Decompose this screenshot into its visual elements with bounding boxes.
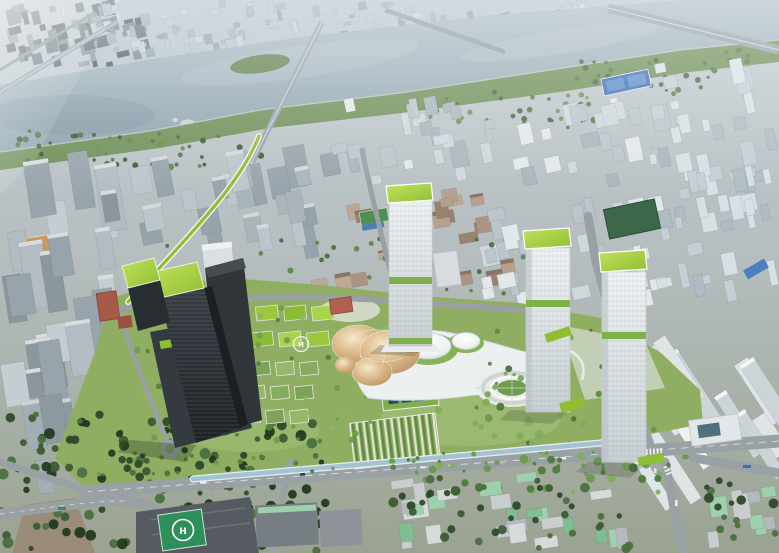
- tree: [190, 454, 194, 458]
- tree: [102, 473, 105, 476]
- tree: [330, 424, 336, 430]
- tree: [475, 237, 479, 241]
- tree: [577, 452, 585, 460]
- tree: [729, 500, 734, 505]
- tree: [537, 485, 543, 491]
- tree: [293, 461, 298, 466]
- tree: [259, 454, 264, 459]
- tree: [315, 241, 319, 245]
- tree: [255, 436, 261, 442]
- tree: [495, 460, 500, 465]
- tree: [438, 460, 441, 463]
- tree: [61, 512, 70, 521]
- tree: [457, 510, 464, 517]
- tree: [296, 437, 300, 441]
- building: [490, 493, 512, 510]
- tree: [409, 508, 417, 516]
- tree: [474, 405, 478, 409]
- tree: [310, 469, 314, 473]
- tree: [336, 418, 339, 421]
- tree: [290, 356, 294, 360]
- tree: [504, 372, 508, 376]
- tree: [304, 397, 308, 401]
- tree: [471, 452, 476, 457]
- tree: [391, 464, 396, 469]
- tree: [557, 457, 562, 462]
- tree: [77, 467, 88, 478]
- tree: [444, 490, 450, 496]
- tree: [484, 465, 491, 472]
- tree: [535, 430, 544, 439]
- brick-building: [117, 315, 133, 329]
- tree: [198, 491, 203, 496]
- tree: [342, 410, 346, 414]
- tree: [279, 238, 283, 242]
- tree: [130, 470, 136, 476]
- building: [482, 287, 495, 300]
- tree: [569, 503, 575, 509]
- tree: [49, 519, 59, 529]
- tree: [251, 456, 256, 461]
- tree: [71, 435, 80, 444]
- building: [595, 529, 608, 543]
- tree: [638, 475, 646, 483]
- tree: [97, 472, 101, 476]
- tree: [264, 433, 271, 440]
- tree: [238, 459, 243, 464]
- tree: [532, 517, 538, 523]
- east-tower-b-grid: [602, 272, 646, 462]
- tree: [617, 513, 622, 518]
- tree: [319, 257, 324, 262]
- tree: [496, 403, 504, 411]
- tree: [416, 456, 420, 460]
- tree: [435, 407, 442, 414]
- tree: [563, 497, 570, 504]
- tree: [44, 428, 55, 439]
- tree: [244, 490, 249, 495]
- tree: [65, 464, 73, 472]
- tree: [134, 347, 141, 354]
- tree: [481, 484, 487, 490]
- tree: [547, 533, 552, 538]
- tree: [545, 451, 548, 454]
- garden-cell: [306, 331, 329, 347]
- tree: [195, 461, 204, 470]
- tree: [477, 269, 482, 274]
- tree: [99, 506, 106, 513]
- tree: [666, 463, 671, 468]
- tree: [256, 361, 261, 366]
- garden-cell: [299, 361, 318, 376]
- garden-cell: [275, 361, 294, 376]
- tree: [502, 291, 506, 295]
- central-tower-sky-garden: [389, 277, 432, 284]
- tree: [485, 414, 493, 422]
- brick-building: [329, 297, 353, 315]
- building: [425, 524, 442, 544]
- tree: [151, 434, 157, 440]
- tree: [508, 515, 514, 521]
- tree: [156, 383, 162, 389]
- tree: [561, 511, 569, 519]
- tree: [256, 332, 263, 339]
- garden-cell: [270, 385, 289, 400]
- tree: [319, 460, 324, 465]
- tree: [116, 430, 123, 437]
- tree: [126, 457, 133, 464]
- tree: [147, 418, 156, 427]
- building: [398, 522, 415, 542]
- tree: [426, 475, 435, 484]
- tree: [704, 484, 710, 490]
- tree: [77, 418, 83, 424]
- tree: [704, 493, 714, 503]
- tree: [331, 245, 336, 250]
- tree: [85, 530, 96, 541]
- tree: [736, 495, 745, 504]
- tree: [266, 424, 273, 431]
- tree: [325, 253, 330, 258]
- tree: [596, 391, 602, 397]
- tree: [547, 456, 555, 464]
- tree: [145, 349, 149, 353]
- tree: [132, 458, 136, 462]
- tree: [727, 481, 733, 487]
- tree: [95, 411, 103, 419]
- tree: [33, 412, 39, 418]
- tree: [505, 365, 512, 372]
- tree: [716, 525, 724, 533]
- tree: [488, 362, 492, 366]
- tree: [512, 501, 521, 510]
- tree: [518, 375, 525, 382]
- tree: [478, 424, 484, 430]
- tree: [20, 439, 27, 446]
- tree: [415, 470, 419, 474]
- tree: [52, 445, 59, 452]
- tree: [597, 522, 604, 529]
- tree: [284, 337, 290, 343]
- tree: [571, 416, 577, 422]
- tree: [155, 493, 165, 503]
- tree: [437, 475, 443, 481]
- building: [702, 274, 712, 284]
- tree: [384, 325, 389, 330]
- tree: [23, 487, 29, 493]
- tree: [429, 466, 437, 474]
- tree: [165, 244, 169, 248]
- tree: [440, 533, 449, 542]
- tree: [299, 315, 304, 320]
- tree: [388, 497, 398, 507]
- east-tower-b-green-roof: [599, 250, 647, 272]
- east-tower-b-sky-garden: [602, 332, 646, 339]
- tree: [461, 479, 468, 486]
- tree: [716, 477, 723, 484]
- building: [720, 220, 733, 232]
- tree: [308, 419, 317, 428]
- tree: [656, 490, 661, 495]
- tree: [331, 467, 335, 471]
- tree: [2, 537, 13, 548]
- tree: [235, 433, 239, 437]
- tree: [273, 437, 279, 443]
- tree: [522, 455, 527, 460]
- tree: [306, 411, 309, 414]
- tree: [369, 241, 374, 246]
- tree: [353, 430, 359, 436]
- tree: [769, 498, 779, 508]
- tree: [598, 513, 605, 520]
- tree: [472, 420, 478, 426]
- tree: [368, 420, 372, 424]
- garden-cell: [265, 409, 284, 424]
- tree: [492, 433, 498, 439]
- tree: [318, 439, 323, 444]
- tree: [484, 461, 488, 465]
- tree: [407, 458, 411, 462]
- tree: [557, 492, 563, 498]
- tree: [730, 534, 737, 541]
- tree: [495, 382, 498, 385]
- tree: [74, 527, 85, 538]
- helipad-letter: H: [179, 527, 187, 537]
- tree: [436, 462, 444, 470]
- tree: [108, 449, 115, 456]
- east-tower-b-shade: [602, 272, 608, 462]
- tree: [654, 475, 661, 482]
- tree: [419, 500, 425, 506]
- tree: [144, 458, 150, 464]
- tree: [735, 522, 741, 528]
- tree: [571, 490, 575, 494]
- garden-cell: [289, 409, 308, 424]
- east-tower-a-shade: [526, 248, 532, 412]
- neighbor-block: [319, 509, 363, 547]
- tree: [580, 483, 590, 493]
- tree: [200, 448, 211, 459]
- tree: [451, 486, 461, 496]
- tree: [117, 538, 128, 549]
- tree: [545, 484, 553, 492]
- tree: [164, 470, 170, 476]
- tree: [109, 539, 118, 548]
- tree: [287, 268, 293, 274]
- tree: [521, 255, 526, 260]
- tree: [538, 466, 546, 474]
- tree: [589, 329, 592, 332]
- tree: [380, 412, 383, 415]
- tree: [118, 456, 125, 463]
- tree: [534, 478, 540, 484]
- building: [748, 490, 761, 503]
- tree: [495, 329, 500, 334]
- aerial-rendering-stage: H: [0, 0, 779, 553]
- tree: [527, 485, 534, 492]
- tree: [258, 251, 263, 256]
- tree: [462, 470, 465, 473]
- tree: [42, 523, 49, 530]
- tree: [142, 467, 150, 475]
- tree: [84, 510, 94, 520]
- tree: [528, 458, 533, 463]
- tree: [62, 528, 71, 537]
- tree: [124, 465, 132, 473]
- east-tower-a-sky-garden: [526, 300, 570, 307]
- rooftop-helipad: H: [294, 337, 309, 352]
- tree: [279, 306, 285, 312]
- tree: [714, 503, 721, 510]
- tree: [354, 246, 360, 252]
- tree: [477, 504, 484, 511]
- tree: [512, 373, 516, 377]
- tree: [142, 393, 147, 398]
- brick-building: [96, 291, 120, 322]
- east-tower-a-green-roof: [523, 228, 571, 249]
- tree: [367, 275, 372, 280]
- tree: [225, 466, 231, 472]
- tree: [447, 525, 455, 533]
- tree: [492, 384, 497, 389]
- tree: [772, 530, 779, 537]
- building: [761, 486, 776, 498]
- tree: [557, 464, 561, 468]
- central-tower: [381, 183, 440, 352]
- tree: [682, 454, 687, 459]
- tree: [302, 484, 312, 494]
- tree: [29, 546, 34, 551]
- tree: [651, 427, 657, 433]
- tree: [489, 242, 495, 248]
- tree: [321, 499, 329, 507]
- tree: [214, 460, 219, 465]
- tree: [245, 465, 248, 468]
- tree: [450, 464, 455, 469]
- tree: [307, 438, 318, 449]
- tree: [279, 434, 288, 443]
- tree: [23, 477, 30, 484]
- tree: [6, 413, 15, 422]
- helipad-letter: H: [298, 341, 304, 349]
- tree: [485, 391, 491, 397]
- tree: [313, 453, 319, 459]
- tree: [592, 451, 595, 454]
- tree: [475, 538, 483, 546]
- tree: [482, 399, 490, 407]
- central-tower-base-garden: [389, 338, 432, 344]
- tree: [33, 523, 40, 530]
- tree: [442, 452, 445, 455]
- building: [508, 522, 527, 543]
- tree: [469, 289, 473, 293]
- tree: [516, 432, 524, 440]
- building: [707, 531, 720, 549]
- garden-cell: [294, 385, 313, 400]
- tree: [83, 420, 90, 427]
- tree: [152, 472, 155, 475]
- tree: [721, 514, 727, 520]
- tree: [391, 459, 396, 464]
- central-tower-grid: [389, 200, 432, 346]
- tree: [445, 288, 448, 291]
- atmospheric-haze: [0, 0, 779, 200]
- tree: [176, 471, 179, 474]
- garden-cell: [255, 305, 278, 321]
- tree: [37, 447, 45, 455]
- tree: [135, 472, 144, 481]
- tree: [492, 529, 500, 537]
- tree: [288, 490, 297, 499]
- tree: [579, 420, 587, 428]
- aerial-masterplan-rendering: H: [0, 0, 779, 553]
- tree: [533, 462, 537, 466]
- tree: [536, 545, 542, 551]
- tree: [569, 530, 576, 537]
- tree: [411, 459, 415, 463]
- tree: [41, 462, 51, 472]
- tree: [291, 424, 296, 429]
- tree: [240, 452, 247, 459]
- tree: [349, 437, 355, 443]
- tree: [276, 318, 280, 322]
- tree: [334, 385, 340, 391]
- tree: [255, 342, 261, 348]
- tree: [399, 493, 406, 500]
- tree: [258, 313, 264, 319]
- white-midrise: [433, 250, 461, 287]
- tree: [625, 541, 634, 550]
- tree: [427, 490, 434, 497]
- exhibition-dome-small: [452, 333, 480, 350]
- tree: [325, 355, 330, 360]
